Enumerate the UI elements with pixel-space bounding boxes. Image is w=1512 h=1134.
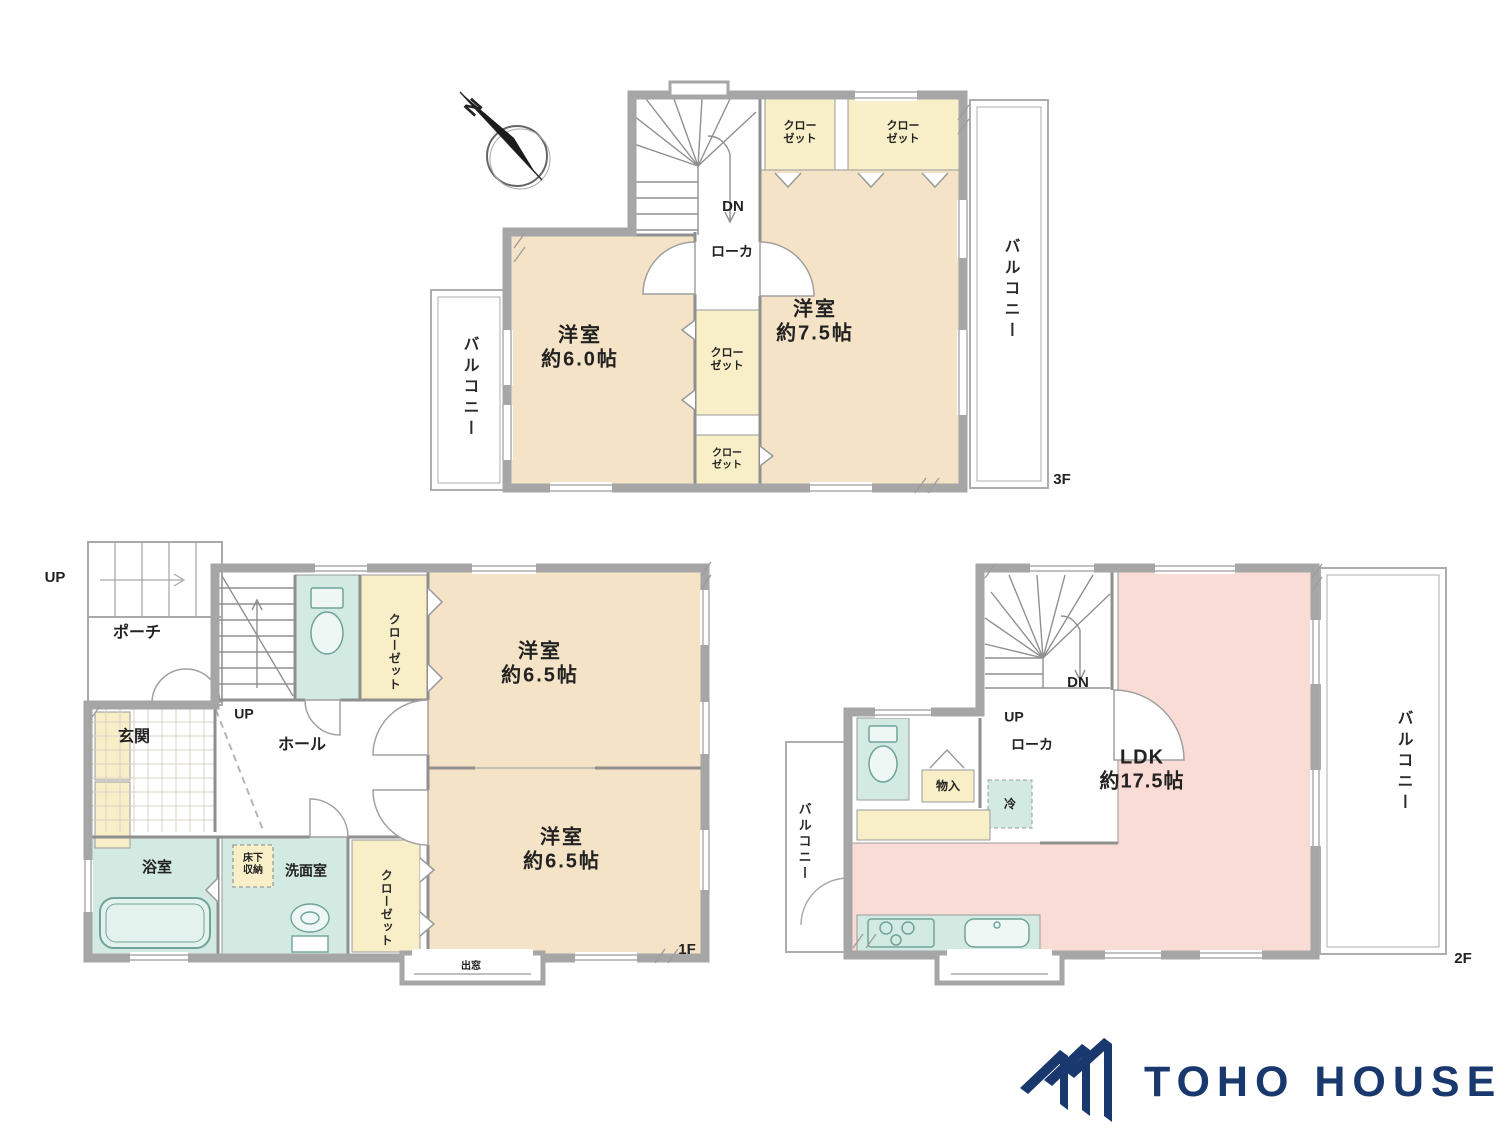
room-size: 約6.5帖 bbox=[523, 850, 601, 874]
porch-label-1f: ポーチ bbox=[113, 625, 161, 644]
exterior-stairs-1f bbox=[88, 542, 222, 617]
toho-house-logo-mark bbox=[1018, 1036, 1138, 1131]
floor-plan-1f: UP ポーチ 玄関 ホール UP クローゼット 洋室 約6.5帖 洋室 約6.5… bbox=[30, 530, 720, 995]
room-label-bedroom-bottom-1f: 洋室 約6.5帖 bbox=[523, 826, 601, 873]
counter-2f bbox=[857, 810, 990, 840]
stairs-down-label-2f: DN bbox=[1067, 674, 1089, 692]
washing-machine-icon bbox=[292, 936, 328, 952]
fridge-label-2f: 冷 bbox=[1004, 797, 1016, 811]
logo-roof-icon bbox=[1020, 1038, 1112, 1122]
closet-line1: クロー bbox=[784, 120, 817, 133]
stairs-up-label-2f: UP bbox=[1004, 709, 1023, 726]
closet-label-top-b-3f: クロー ゼット bbox=[887, 120, 920, 146]
closet-line1: クロー bbox=[887, 120, 920, 133]
sink-icon-1f bbox=[291, 904, 329, 952]
rooms-3f bbox=[509, 97, 963, 487]
floor-plan-2f: DN UP ローカ 物入 冷 LDK 約17.5帖 バルコニー バルコニー 2F bbox=[775, 530, 1495, 1000]
balcony-label-left-2f: バルコニー bbox=[796, 802, 811, 882]
room-name: 洋室 bbox=[541, 324, 619, 348]
balcony-right-2f bbox=[1320, 568, 1446, 954]
storage-label-2f: 物入 bbox=[936, 779, 960, 793]
balcony-label-right-2f: バルコニー bbox=[1393, 710, 1412, 815]
entrance-label-1f: 玄関 bbox=[118, 729, 150, 748]
closet-label-bottom-1f: クローゼット bbox=[380, 869, 393, 915]
closet-line2: ゼット bbox=[712, 460, 742, 472]
floor-label-3f: 3F bbox=[1053, 471, 1071, 489]
closet-line1: クロー bbox=[711, 347, 744, 360]
room-name: 洋室 bbox=[523, 826, 601, 850]
up-outside-label-1f: UP bbox=[45, 569, 66, 587]
top-window-box-3f bbox=[670, 82, 728, 96]
closet-line2: ゼット bbox=[887, 133, 920, 146]
room-name: LDK bbox=[1100, 746, 1185, 770]
up-stairs-label-1f: UP bbox=[234, 706, 253, 723]
closet-line1: クロー bbox=[712, 448, 742, 460]
room-name: 洋室 bbox=[776, 298, 854, 322]
balcony-left-2f bbox=[786, 742, 845, 952]
floorplan-page: N 洋室 約6.0帖 洋室 約7.5帖 クロー ゼット クロー ゼット クロー … bbox=[0, 0, 1512, 1134]
floor-label-2f: 2F bbox=[1454, 950, 1472, 968]
entrance-step-line bbox=[216, 710, 263, 830]
toilet-icon-1f bbox=[311, 588, 343, 654]
room-size: 約6.5帖 bbox=[501, 664, 579, 688]
bathtub-icon bbox=[100, 898, 210, 948]
closet-label-top-1f: クローゼット bbox=[388, 613, 401, 659]
underfloor-line1: 床下 bbox=[243, 853, 263, 865]
closet-line2: ゼット bbox=[711, 360, 744, 373]
room-label-bedroom-left-3f: 洋室 約6.0帖 bbox=[541, 324, 619, 371]
toilet-icon-2f bbox=[869, 726, 897, 782]
room-size: 約17.5帖 bbox=[1100, 770, 1185, 794]
toho-house-logo-text: TOHO HOUSE bbox=[1144, 1052, 1502, 1112]
underfloor-line2: 収納 bbox=[243, 865, 263, 877]
closet-label-top-a-3f: クロー ゼット bbox=[784, 120, 817, 146]
stairs-2f bbox=[985, 575, 1110, 688]
room-size: 約7.5帖 bbox=[776, 322, 854, 346]
balcony-label-left-3f: バルコニー bbox=[459, 336, 478, 441]
floor-label-1f: 1F bbox=[678, 941, 696, 959]
closet-line2: ゼット bbox=[784, 133, 817, 146]
stairs-1f bbox=[219, 576, 295, 696]
floor-1f-drawing bbox=[30, 530, 720, 995]
door-arcs-1f bbox=[305, 700, 428, 845]
washroom-label-1f: 洗面室 bbox=[285, 863, 327, 880]
stairs-down-label-3f: DN bbox=[722, 198, 744, 216]
bathroom-label-1f: 浴室 bbox=[142, 859, 172, 877]
bay-window-label-1f: 出窓 bbox=[461, 961, 481, 973]
bay-window-2f bbox=[937, 949, 1062, 983]
room-label-ldk-2f: LDK 約17.5帖 bbox=[1100, 746, 1185, 793]
room-size: 約6.0帖 bbox=[541, 348, 619, 372]
balcony-label-right-3f: バルコニー bbox=[1000, 238, 1019, 343]
room-label-bedroom-top-1f: 洋室 約6.5帖 bbox=[501, 640, 579, 687]
corridor-label-2f: ローカ bbox=[1011, 737, 1053, 754]
room-name: 洋室 bbox=[501, 640, 579, 664]
toho-house-logo: TOHO HOUSE bbox=[1018, 1036, 1504, 1128]
floor-plan-3f: N 洋室 約6.0帖 洋室 約7.5帖 クロー ゼット クロー ゼット クロー … bbox=[430, 80, 1090, 530]
hall-label-1f: ホール bbox=[278, 737, 326, 756]
corridor-label-3f: ローカ bbox=[711, 244, 753, 261]
closet-label-bottom-3f: クロー ゼット bbox=[712, 448, 742, 472]
room-label-bedroom-right-3f: 洋室 約7.5帖 bbox=[776, 298, 854, 345]
kitchen-sink-icon bbox=[965, 919, 1029, 947]
underfloor-storage-label-1f: 床下 収納 bbox=[243, 853, 263, 877]
hanger-symbol-icon bbox=[930, 750, 964, 768]
closet-label-mid-3f: クロー ゼット bbox=[711, 347, 744, 373]
room-ldk-2f bbox=[852, 572, 1311, 951]
floor-3f-drawing bbox=[430, 80, 1090, 530]
